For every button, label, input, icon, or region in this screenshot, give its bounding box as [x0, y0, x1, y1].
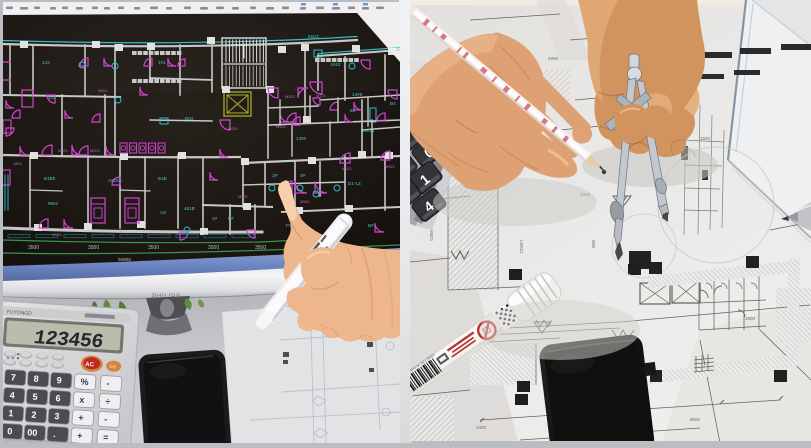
svg-text:451B: 451B — [184, 206, 195, 211]
svg-text:M521: M521 — [285, 94, 296, 99]
svg-text:=: = — [103, 432, 109, 442]
svg-text:M521: M521 — [385, 164, 396, 169]
svg-text:B04: B04 — [185, 116, 194, 121]
svg-text:3500: 3500 — [28, 245, 39, 251]
svg-text:16011: 16011 — [362, 128, 375, 133]
svg-text:9000: 9000 — [690, 417, 701, 422]
svg-text:3500: 3500 — [208, 245, 219, 251]
svg-text:1500: 1500 — [700, 136, 711, 141]
svg-text:M521: M521 — [90, 148, 101, 153]
svg-text:2900: 2900 — [548, 56, 559, 61]
svg-text:142: 142 — [48, 95, 56, 100]
svg-text:KB21: KB21 — [308, 34, 320, 39]
svg-text:3500: 3500 — [148, 245, 159, 251]
svg-text:9951: 9951 — [48, 201, 59, 206]
svg-text:4P: 4P — [300, 173, 306, 178]
svg-text:14#8: 14#8 — [352, 92, 363, 97]
svg-text:AC: AC — [85, 362, 95, 369]
svg-text:3: 3 — [54, 411, 60, 421]
svg-text:-: - — [104, 414, 108, 424]
svg-text:%: % — [80, 377, 89, 387]
svg-text:÷: ÷ — [105, 396, 111, 406]
svg-text:x: x — [79, 395, 85, 405]
svg-text:M521: M521 — [98, 88, 109, 93]
svg-text:M521: M521 — [342, 166, 353, 171]
svg-text:1#43: 1#43 — [330, 62, 341, 67]
svg-text:3400: 3400 — [476, 425, 487, 430]
svg-text:B#: B# — [368, 223, 374, 228]
svg-text:M52: M52 — [14, 161, 23, 166]
svg-text:A3: A3 — [160, 210, 166, 215]
svg-text:14#8: 14#8 — [296, 136, 306, 141]
svg-text:143: 143 — [42, 60, 50, 65]
svg-text:5: 5 — [32, 392, 38, 402]
svg-text:3500: 3500 — [255, 245, 266, 251]
svg-text:8: 8 — [33, 374, 39, 384]
svg-text:1P: 1P — [272, 173, 278, 178]
svg-text:M921: M921 — [228, 126, 239, 131]
svg-text:2: 2 — [31, 410, 37, 420]
svg-text:CS: CS — [109, 364, 116, 369]
svg-text:M521: M521 — [300, 199, 311, 204]
svg-text:0: 0 — [7, 426, 13, 436]
svg-text:1#: 1# — [212, 216, 218, 221]
svg-text:+: + — [77, 431, 83, 441]
svg-text:B4: B4 — [390, 101, 396, 106]
svg-text:56908: 56908 — [118, 257, 131, 262]
svg-text:6: 6 — [55, 393, 61, 403]
svg-text:-: - — [106, 378, 110, 388]
svg-text:1: 1 — [8, 408, 14, 418]
svg-text:B00: B00 — [591, 240, 596, 249]
svg-text:B4: B4 — [350, 108, 356, 113]
svg-text:M521: M521 — [238, 194, 249, 199]
svg-text:B1B5: B1B5 — [44, 176, 56, 181]
svg-text:123456: 123456 — [32, 327, 105, 354]
svg-text:7: 7 — [10, 372, 16, 382]
svg-text:4: 4 — [9, 390, 15, 400]
svg-text:D1-1Z: D1-1Z — [348, 181, 361, 186]
svg-text:LM521: LM521 — [519, 240, 524, 254]
svg-text:+: + — [78, 413, 84, 423]
svg-text:1#1: 1#1 — [158, 60, 166, 65]
svg-text:M721: M721 — [316, 93, 327, 98]
svg-text:A515A: A515A — [108, 178, 123, 183]
svg-text:3500: 3500 — [88, 245, 99, 251]
svg-text:00: 00 — [27, 427, 38, 438]
svg-text:M521: M521 — [58, 148, 69, 153]
svg-text:E4B: E4B — [158, 176, 167, 181]
svg-text:1800: 1800 — [745, 316, 756, 321]
svg-text:B#: B# — [228, 216, 234, 221]
svg-text:9: 9 — [56, 375, 62, 385]
svg-text:M521: M521 — [429, 230, 434, 242]
